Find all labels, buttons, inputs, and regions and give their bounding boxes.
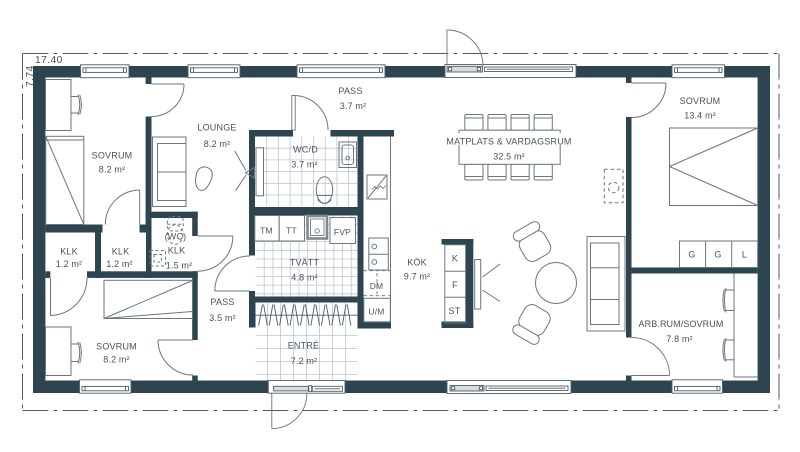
svg-text:7.8 m²: 7.8 m² <box>666 334 692 344</box>
svg-text:13.4 m²: 13.4 m² <box>684 111 716 121</box>
svg-text:3.5 m²: 3.5 m² <box>209 313 235 323</box>
svg-text:WC/D: WC/D <box>293 145 318 155</box>
svg-text:ARB.RUM/SOVRUM: ARB.RUM/SOVRUM <box>639 319 724 329</box>
svg-text:G: G <box>688 250 695 260</box>
svg-text:SOVRUM: SOVRUM <box>680 96 721 106</box>
svg-text:1.2 m²: 1.2 m² <box>106 259 132 269</box>
svg-text:8.2 m²: 8.2 m² <box>99 165 125 175</box>
svg-text:KLK: KLK <box>112 247 130 257</box>
svg-text:F: F <box>452 280 458 290</box>
svg-text:FVP: FVP <box>334 227 351 237</box>
svg-text:1.5 m²: 1.5 m² <box>166 261 192 271</box>
svg-text:3.7 m²: 3.7 m² <box>340 101 366 111</box>
svg-text:ST: ST <box>449 306 461 316</box>
svg-text:17.40: 17.40 <box>35 55 63 66</box>
svg-text:SOVRUM: SOVRUM <box>96 342 137 352</box>
svg-text:DM: DM <box>370 281 384 291</box>
svg-text:1.2 m²: 1.2 m² <box>56 259 82 269</box>
svg-text:PASS: PASS <box>210 297 234 307</box>
svg-text:KLK: KLK <box>168 246 186 256</box>
svg-text:PASS: PASS <box>338 86 362 96</box>
svg-text:4.8 m²: 4.8 m² <box>291 273 317 283</box>
svg-text:TVÄTT: TVÄTT <box>290 258 320 268</box>
svg-text:K: K <box>452 254 458 264</box>
svg-text:LOUNGE: LOUNGE <box>197 123 236 133</box>
svg-text:3.7 m²: 3.7 m² <box>291 160 317 170</box>
svg-text:TT: TT <box>286 226 297 236</box>
svg-text:MATPLATS & VARDAGSRUM: MATPLATS & VARDAGSRUM <box>446 137 571 147</box>
svg-text:SOVRUM: SOVRUM <box>92 151 133 161</box>
svg-text:ENTRÉ: ENTRÉ <box>288 341 320 351</box>
svg-text:TM: TM <box>260 226 273 236</box>
svg-text:L: L <box>742 250 747 260</box>
svg-text:(WC): (WC) <box>165 232 187 242</box>
svg-text:U/M: U/M <box>368 307 384 317</box>
svg-text:G: G <box>714 250 721 260</box>
svg-text:KÖK: KÖK <box>407 258 427 268</box>
svg-text:7.2 m²: 7.2 m² <box>291 356 317 366</box>
svg-text:8.2 m²: 8.2 m² <box>204 139 230 149</box>
svg-text:KLK: KLK <box>60 247 78 257</box>
svg-text:32.5 m²: 32.5 m² <box>493 152 525 162</box>
svg-text:8.2 m²: 8.2 m² <box>103 355 129 365</box>
svg-text:9.7 m²: 9.7 m² <box>404 272 430 282</box>
